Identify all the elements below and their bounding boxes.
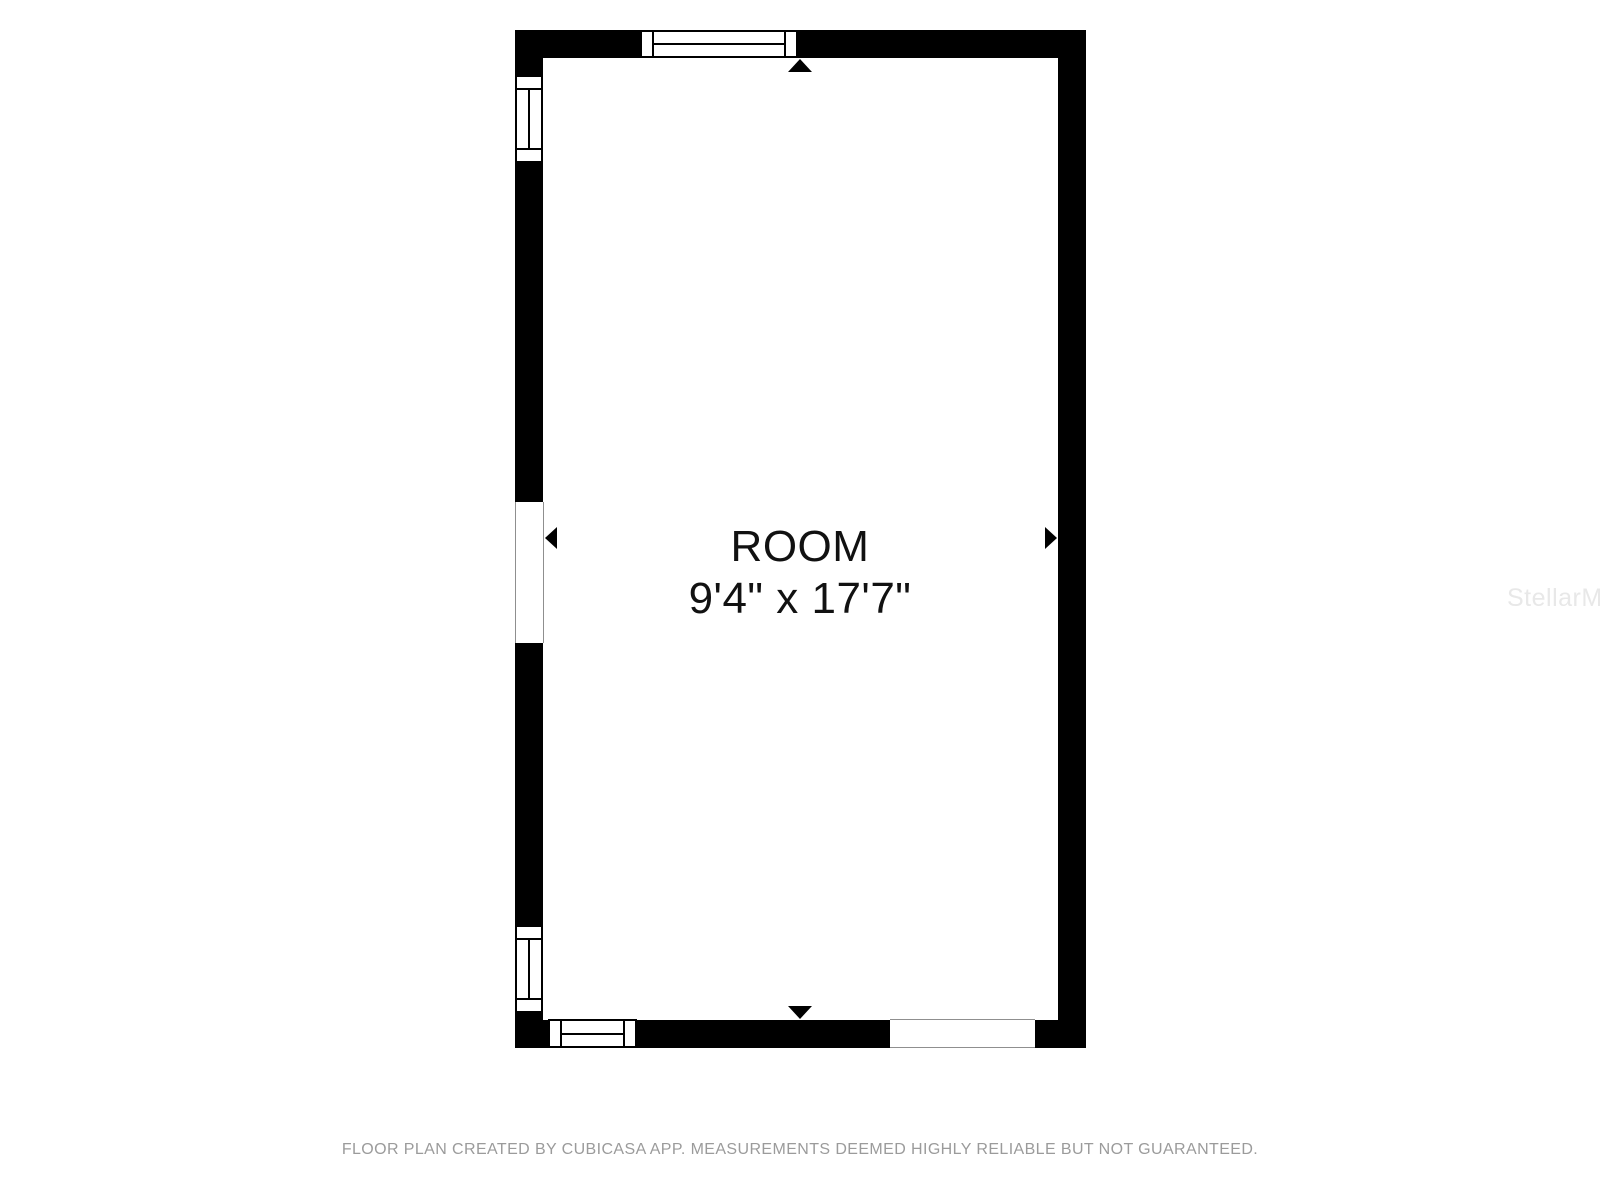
watermark: StellarMLS: [1507, 584, 1600, 613]
room-label: ROOM 9'4" x 17'7": [600, 521, 1000, 625]
left-wall-door-opening: [515, 502, 544, 643]
footer-disclaimer: FLOOR PLAN CREATED BY CUBICASA APP. MEAS…: [0, 1141, 1600, 1159]
window-frame-line: [517, 998, 541, 1000]
window-frame-line: [623, 1021, 625, 1046]
arrow-down-icon: [788, 1006, 812, 1019]
left-wall-upper-window: [515, 75, 543, 163]
room-name-label: ROOM: [600, 521, 1000, 573]
arrow-left-icon: [545, 527, 557, 549]
window-glass-line: [654, 43, 784, 45]
room-dimensions-label: 9'4" x 17'7": [600, 573, 1000, 625]
arrow-up-icon: [788, 59, 812, 72]
arrow-right-icon: [1045, 527, 1057, 549]
window-frame-line: [517, 148, 541, 150]
window-glass-line: [562, 1033, 623, 1035]
window-glass-line: [528, 940, 530, 998]
top-wall-window: [640, 30, 798, 58]
bottom-wall-opening: [890, 1019, 1035, 1048]
bottom-wall-window: [548, 1019, 637, 1048]
left-wall-lower-window: [515, 925, 543, 1013]
window-glass-line: [528, 90, 530, 148]
window-frame-line: [784, 32, 786, 56]
